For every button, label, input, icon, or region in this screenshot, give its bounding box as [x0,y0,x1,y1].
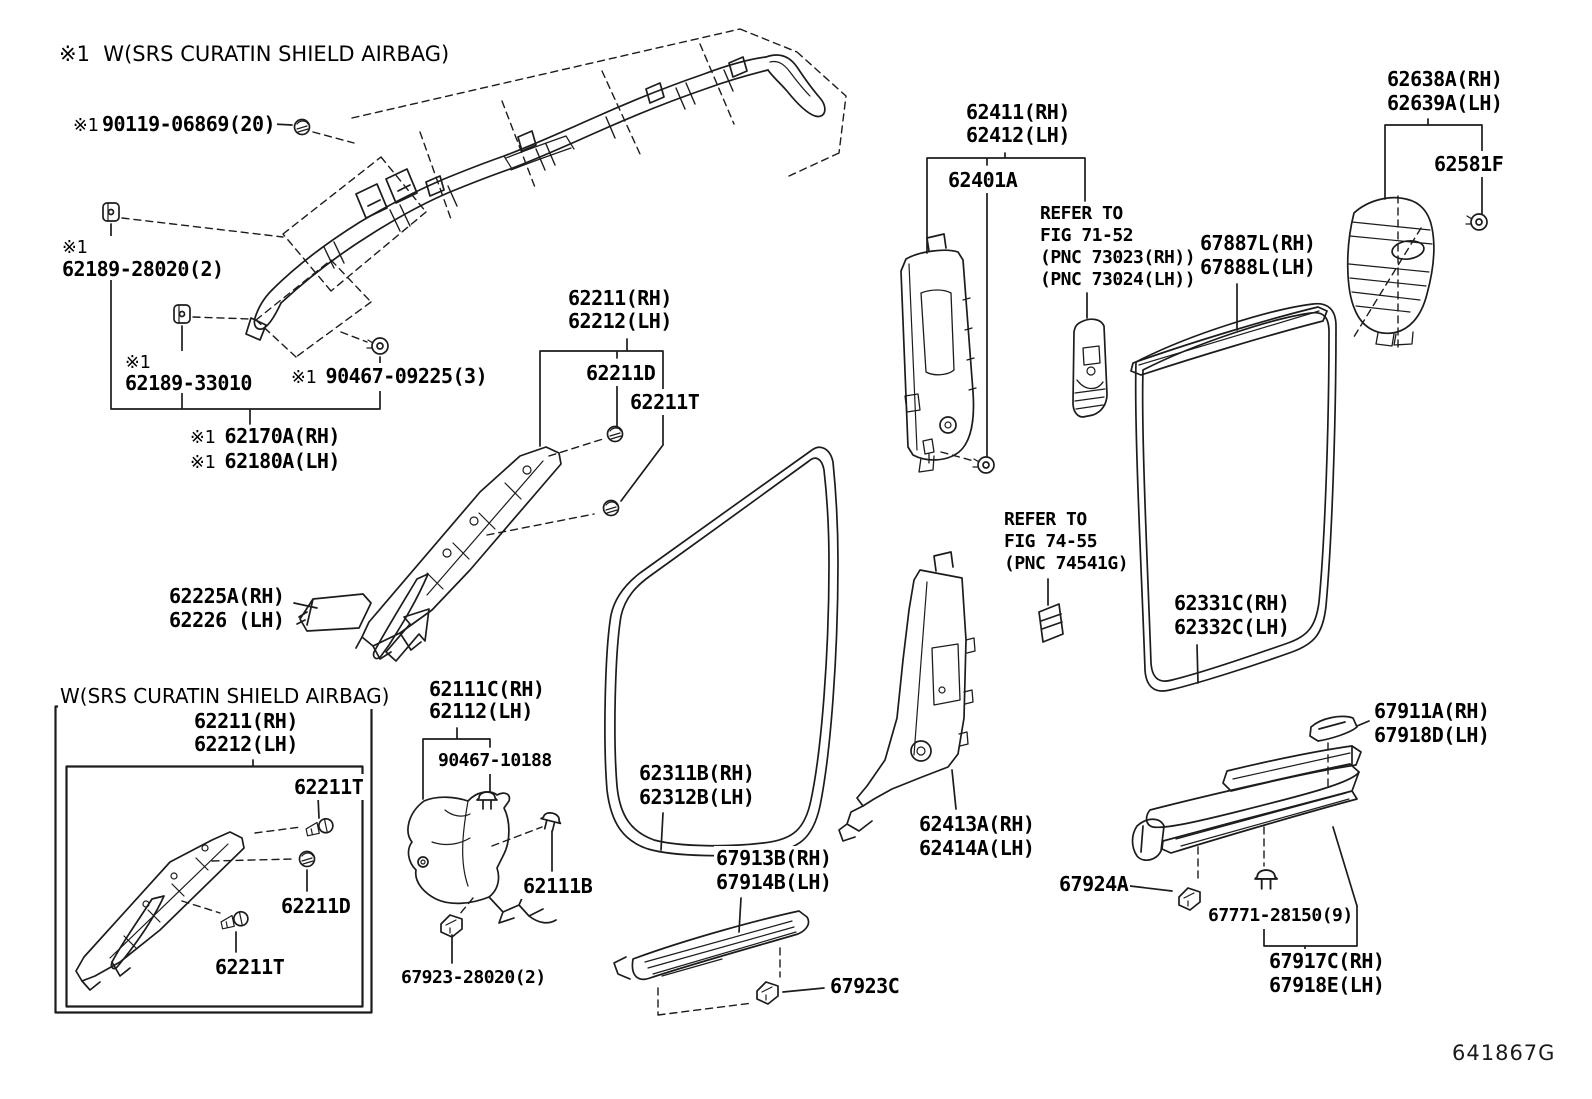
part-label-line: 62211T [294,774,363,800]
part-label-line: 67918E(LH) [1269,973,1384,997]
part-label-line: 62211D [281,893,350,919]
part-label-62170A: ※1 62170A(RH)※1 62180A(LH) [188,425,342,475]
part-label-line: 62413A(RH) [919,812,1034,836]
part-label-62111C: 62111C(RH)62112(LH) [427,678,546,722]
part-label-line: ※1 62180A(LH) [190,450,340,475]
curtain-airbag-drawing [246,29,846,357]
part-label-line: ※1 [62,236,224,259]
part-label-line: 67923C [830,973,899,999]
part-label-line: (PNC 74541G) [1004,553,1128,575]
part-label-line: 67888L(LH) [1200,255,1315,279]
part-label-line: 90467-10188 [438,748,552,774]
part-label-62211-main: 62211(RH)62212(LH) [566,287,674,333]
part-label-line: 62211(RH) [568,287,672,310]
part-label-67771-28150: 67771-28150(9) [1206,903,1355,929]
part-label-refer-74-55: REFER TOFIG 74-55(PNC 74541G) [1002,509,1130,575]
part-label-line: ※1 62170A(RH) [190,425,340,450]
part-label-line: ※190119-06869(20) [73,111,275,139]
part-label-62638A: 62638A(RH)62639A(LH) [1385,67,1504,115]
part-label-line: 62332C(LH) [1174,615,1289,639]
part-label-67923C: 67923C [828,973,901,999]
part-label-line: W(SRS CURATIN SHIELD AIRBAG) [60,684,389,709]
part-label-67913B: 67913B(RH)67914B(LH) [714,846,833,894]
part-label-62581F: 62581F [1432,151,1505,177]
part-label-line: REFER TO [1004,509,1128,531]
part-label-67924A: 67924A [1057,871,1130,897]
part-label-line: 62414A(LH) [919,836,1034,860]
part-label-62189-28020: ※162189-28020(2) [60,236,226,280]
part-label-90467-09225: ※1 90467-09225(3) [289,363,489,391]
part-label-line: 67913B(RH) [716,846,831,870]
refer-fig-71-52-part-drawing [1073,319,1107,417]
b-pillar-lower-garnish-drawing [839,552,975,841]
figure-code: 641867G [1452,1041,1555,1065]
part-label-line: ※1 90467-09225(3) [291,363,487,391]
part-label-62211T-box-top: 62211T [292,774,365,800]
part-label-line: 67911A(RH) [1374,699,1489,723]
part-label-refer-71-52: REFER TOFIG 71-52(PNC 73023(RH))(PNC 730… [1038,203,1197,291]
part-label-line: 62211T [630,389,699,415]
part-label-line: 62212(LH) [568,310,672,333]
part-label-line: 62111C(RH) [429,678,544,700]
part-label-62413A: 62413A(RH)62414A(LH) [917,812,1036,860]
part-label-line: 62189-28020(2) [62,259,224,280]
part-label-67917C: 67917C(RH)67918E(LH) [1267,949,1386,997]
front-scuff-plate-drawing [614,898,824,1015]
b-pillar-upper-garnish-drawing [901,153,1087,473]
part-label-62401A: 62401A [946,167,1019,193]
part-label-62225A: 62225A(RH)62226 (LH) [167,584,286,632]
part-label-line: 62638A(RH) [1387,67,1502,91]
part-label-90467-10188: 90467-10188 [436,748,554,774]
part-label-62211T-main: 62211T [628,389,701,415]
part-label-line: 62639A(LH) [1387,91,1502,115]
part-label-line: 67917C(RH) [1269,949,1384,973]
part-label-line: (PNC 73023(RH)) [1040,247,1195,269]
part-label-line: 62211D [586,360,655,386]
part-label-line: FIG 71-52 [1040,225,1195,247]
part-label-line: 62189-33010 [125,373,252,393]
part-label-line: 62112(LH) [429,700,544,722]
part-label-line: 67918D(LH) [1374,723,1489,747]
pillar-cover-62225A [297,594,371,631]
part-label-line: 67924A [1059,871,1128,897]
parts-diagram-canvas [0,0,1592,1099]
part-label-line: 62211(RH) [194,710,298,733]
part-label-62211D-main: 62211D [584,360,657,386]
part-label-line: 67923-28020(2) [401,965,546,991]
part-label-box-note-srs: W(SRS CURATIN SHIELD AIRBAG) [58,684,391,709]
part-label-line: 62401A [948,167,1017,193]
part-label-note-srs: ※1 W(SRS CURATIN SHIELD AIRBAG) [57,42,451,67]
part-label-line: 67914B(LH) [716,870,831,894]
part-label-line: ※1 W(SRS CURATIN SHIELD AIRBAG) [59,42,449,67]
part-label-line: 62412(LH) [966,124,1070,147]
part-label-67887L: 67887L(RH)67888L(LH) [1198,231,1317,279]
part-label-line: 62581F [1434,151,1503,177]
parts-diagram-page: ※1 W(SRS CURATIN SHIELD AIRBAG)※190119-0… [0,0,1592,1099]
part-label-line: 62212(LH) [194,733,298,756]
part-label-line: 62211T [215,954,284,980]
part-label-62211-box: 62211(RH)62212(LH) [192,710,300,756]
part-label-62189-33010: ※162189-33010 [123,351,254,393]
part-label-62111B: 62111B [521,873,594,899]
part-label-line: REFER TO [1040,203,1195,225]
part-label-line: ※1 [125,351,252,373]
part-label-line: FIG 74-55 [1004,531,1128,553]
part-label-line: 67887L(RH) [1200,231,1315,255]
part-label-line: 62111B [523,873,592,899]
part-label-line: 62411(RH) [966,101,1070,124]
part-label-90119-06869: ※190119-06869(20) [71,111,277,139]
part-label-67923-28020: 67923-28020(2) [399,965,548,991]
part-label-line: (PNC 73024(LH)) [1040,269,1195,291]
part-label-62411: 62411(RH)62412(LH) [964,101,1072,147]
part-label-67911A: 67911A(RH)67918D(LH) [1372,699,1491,747]
sill-cap-67911A [1310,716,1357,741]
part-label-line: 62311B(RH) [639,761,754,785]
refer-fig-74-55-part-drawing [1039,579,1063,642]
part-label-62211T-box-bottom: 62211T [213,954,286,980]
part-label-62311B: 62311B(RH)62312B(LH) [637,761,756,809]
part-label-line: 62226 (LH) [169,608,284,632]
part-label-line: 62312B(LH) [639,785,754,809]
part-label-line: 62225A(RH) [169,584,284,608]
part-label-line: 62331C(RH) [1174,591,1289,615]
part-label-62211D-box: 62211D [279,893,352,919]
part-label-62331C: 62331C(RH)62332C(LH) [1172,591,1291,639]
part-label-line: 67771-28150(9) [1208,903,1353,929]
